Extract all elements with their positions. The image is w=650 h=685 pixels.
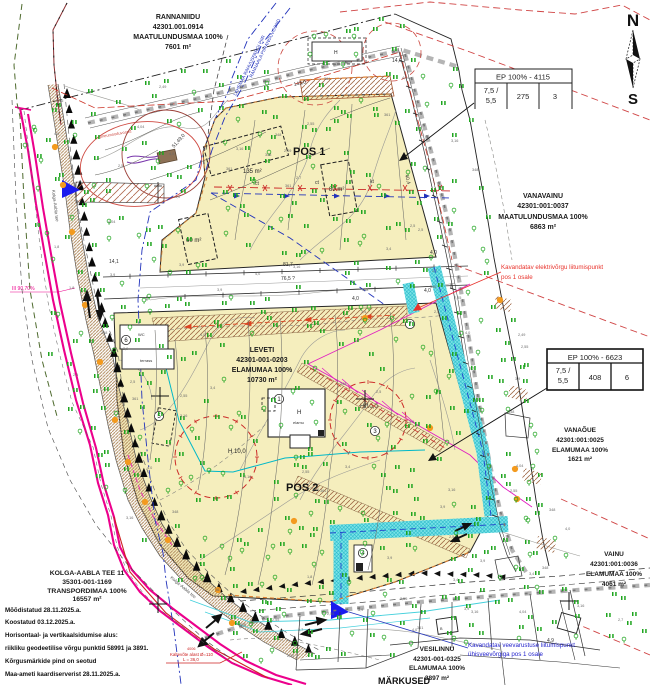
svg-text:4,04: 4,04 xyxy=(137,125,144,129)
svg-text:361: 361 xyxy=(215,588,221,592)
svg-text:3,16: 3,16 xyxy=(471,610,478,614)
svg-text:3,16: 3,16 xyxy=(577,604,584,608)
svg-text:3,9: 3,9 xyxy=(515,377,520,381)
svg-text:348: 348 xyxy=(101,331,107,335)
svg-text:3,9: 3,9 xyxy=(358,608,363,612)
svg-text:WC: WC xyxy=(138,332,145,337)
svg-text:Maa-ameti kaardiserverist 28.1: Maa-ameti kaardiserverist 28.11.2025.a. xyxy=(5,671,121,678)
svg-text:2,5: 2,5 xyxy=(130,380,135,384)
svg-text:135 m²: 135 m² xyxy=(243,169,262,175)
svg-text:3,9: 3,9 xyxy=(440,505,445,509)
svg-text:3,16: 3,16 xyxy=(244,475,251,479)
svg-text:4,0: 4,0 xyxy=(175,195,180,199)
svg-text:VANAÕUE: VANAÕUE xyxy=(564,425,597,434)
svg-text:Kavandatav veevarustuse liitum: Kavandatav veevarustuse liitumispunkt xyxy=(468,642,575,649)
svg-text:4,9: 4,9 xyxy=(547,638,554,644)
svg-text:S: S xyxy=(628,91,638,108)
svg-text:3,9: 3,9 xyxy=(179,263,184,267)
svg-text:2,55: 2,55 xyxy=(454,296,461,300)
svg-text:4,0: 4,0 xyxy=(412,628,417,632)
svg-text:6863 m²: 6863 m² xyxy=(530,224,557,231)
svg-text:361: 361 xyxy=(417,626,423,630)
svg-text:VANAVAINU: VANAVAINU xyxy=(523,193,563,200)
svg-text:4,0: 4,0 xyxy=(169,152,174,156)
svg-text:1,8: 1,8 xyxy=(307,575,312,579)
svg-text:348: 348 xyxy=(508,410,514,414)
svg-text:361: 361 xyxy=(384,113,390,117)
svg-text:ühisveevõrgiga pos 1 osale: ühisveevõrgiga pos 1 osale xyxy=(468,651,544,658)
svg-text:4,04: 4,04 xyxy=(108,220,115,224)
svg-text:3,4: 3,4 xyxy=(529,572,534,576)
svg-text:4,0: 4,0 xyxy=(465,331,470,335)
svg-text:3,9: 3,9 xyxy=(110,273,115,277)
svg-text:35301-001-1169: 35301-001-1169 xyxy=(62,579,112,586)
svg-text:7,5 /: 7,5 / xyxy=(484,86,500,95)
svg-text:4,0: 4,0 xyxy=(565,527,570,531)
svg-text:H: H xyxy=(334,50,338,56)
svg-text:Horisontaal- ja vertikaalsidum: Horisontaal- ja vertikaalsidumise alus: xyxy=(5,632,118,639)
svg-text:361: 361 xyxy=(320,489,326,493)
svg-text:348: 348 xyxy=(275,133,281,137)
svg-text:2,7: 2,7 xyxy=(296,176,301,180)
svg-text:Kavandatav elektrivõrgu liitum: Kavandatav elektrivõrgu liitumispunkt xyxy=(501,264,603,271)
svg-text:3,16: 3,16 xyxy=(56,99,63,103)
svg-text:EP 100% - 4115: EP 100% - 4115 xyxy=(496,73,550,82)
svg-text:VESILINNU: VESILINNU xyxy=(420,646,455,653)
svg-text:4061 m²: 4061 m² xyxy=(602,581,627,588)
svg-text:elamu: elamu xyxy=(293,420,304,425)
svg-text:1621 m²: 1621 m² xyxy=(568,456,593,463)
svg-text:pos 1 osale: pos 1 osale xyxy=(501,274,533,281)
svg-text:361: 361 xyxy=(324,77,330,81)
svg-text:ELAMUMAA 100%: ELAMUMAA 100% xyxy=(552,447,608,454)
svg-text:42301:001:0036: 42301:001:0036 xyxy=(590,561,638,568)
svg-text:2,55: 2,55 xyxy=(510,489,517,493)
svg-text:42301.001.0914: 42301.001.0914 xyxy=(153,24,204,31)
svg-text:ELAMUMAA 100%: ELAMUMAA 100% xyxy=(232,367,293,374)
svg-text:348: 348 xyxy=(430,285,436,289)
svg-text:3,16: 3,16 xyxy=(293,265,300,269)
svg-text:42301-001-0325: 42301-001-0325 xyxy=(413,656,461,663)
svg-text:2,55: 2,55 xyxy=(521,345,528,349)
svg-text:H 10,0: H 10,0 xyxy=(228,449,246,455)
svg-text:348: 348 xyxy=(172,510,178,514)
svg-text:riikliku geodeetilise võrgu pu: riikliku geodeetilise võrgu punktid 5899… xyxy=(5,645,149,652)
svg-text:3,4: 3,4 xyxy=(453,578,458,582)
svg-text:3,16: 3,16 xyxy=(448,488,455,492)
svg-text:3,4: 3,4 xyxy=(210,386,215,390)
svg-text:3,9: 3,9 xyxy=(480,559,485,563)
svg-text:2,5: 2,5 xyxy=(73,373,78,377)
svg-text:4,04: 4,04 xyxy=(519,610,526,614)
svg-text:16557 m²: 16557 m² xyxy=(72,596,102,603)
svg-text:76,5 ?: 76,5 ? xyxy=(281,276,295,282)
svg-text:2,5: 2,5 xyxy=(410,224,415,228)
svg-text:2,55: 2,55 xyxy=(327,612,334,616)
svg-text:3,9: 3,9 xyxy=(409,420,414,424)
svg-text:42301:001:0025: 42301:001:0025 xyxy=(556,437,604,444)
svg-text:2,7: 2,7 xyxy=(432,269,437,273)
svg-text:2,5: 2,5 xyxy=(434,310,439,314)
svg-text:3,9: 3,9 xyxy=(387,556,392,560)
svg-text:5,5: 5,5 xyxy=(486,96,496,105)
svg-text:2,7: 2,7 xyxy=(298,628,303,632)
svg-text:42301:001:0037: 42301:001:0037 xyxy=(517,203,568,210)
svg-text:3,9: 3,9 xyxy=(464,607,469,611)
svg-text:3,16: 3,16 xyxy=(451,139,458,143)
svg-text:2,55: 2,55 xyxy=(180,394,187,398)
svg-text:14,1: 14,1 xyxy=(109,259,119,265)
svg-text:Kõrgusmärkide pind on seotud: Kõrgusmärkide pind on seotud xyxy=(5,658,97,665)
svg-text:361: 361 xyxy=(226,167,232,171)
svg-text:1,8: 1,8 xyxy=(69,286,74,290)
svg-text:4,0: 4,0 xyxy=(147,466,152,470)
svg-text:2,55: 2,55 xyxy=(302,470,309,474)
svg-text:Koostatud 03.12.2025.a.: Koostatud 03.12.2025.a. xyxy=(5,619,75,626)
svg-text:275: 275 xyxy=(517,92,530,101)
svg-text:42301-001-0203: 42301-001-0203 xyxy=(236,357,287,364)
svg-text:2,7: 2,7 xyxy=(469,367,474,371)
svg-text:10730 m²: 10730 m² xyxy=(247,377,278,384)
svg-text:2,49: 2,49 xyxy=(284,149,291,153)
svg-text:361: 361 xyxy=(132,397,138,401)
svg-text:6: 6 xyxy=(625,373,629,382)
svg-text:4,0: 4,0 xyxy=(255,272,260,276)
svg-text:3,16: 3,16 xyxy=(126,516,133,520)
svg-text:4,0: 4,0 xyxy=(54,132,59,136)
svg-text:2,49: 2,49 xyxy=(159,85,166,89)
svg-text:5,5: 5,5 xyxy=(558,376,568,385)
svg-text:MAATULUNDUSMAA 100%: MAATULUNDUSMAA 100% xyxy=(133,34,223,41)
svg-text:terrass: terrass xyxy=(140,358,152,363)
svg-text:1,8: 1,8 xyxy=(54,245,59,249)
svg-text:N: N xyxy=(627,11,639,30)
svg-text:81,7: 81,7 xyxy=(283,262,293,268)
svg-text:EP 100% - 6623: EP 100% - 6623 xyxy=(568,353,623,362)
svg-text:3: 3 xyxy=(553,92,557,101)
svg-text:RANNANIIDU: RANNANIIDU xyxy=(156,14,200,21)
svg-text:361: 361 xyxy=(285,184,291,188)
svg-text:2,5: 2,5 xyxy=(449,535,454,539)
svg-text:4,04: 4,04 xyxy=(402,76,409,80)
svg-text:2,49: 2,49 xyxy=(518,333,525,337)
svg-text:kt: kt xyxy=(370,179,375,185)
svg-text:2,55: 2,55 xyxy=(287,654,294,658)
svg-text:ct: ct xyxy=(315,180,320,186)
svg-text:3,16: 3,16 xyxy=(180,414,187,418)
svg-text:348: 348 xyxy=(542,566,548,570)
svg-text:MAATULUNDUSMAA 100%: MAATULUNDUSMAA 100% xyxy=(498,214,588,221)
svg-text:2,5: 2,5 xyxy=(418,228,423,232)
svg-text:2,7: 2,7 xyxy=(618,618,623,622)
svg-text:408: 408 xyxy=(589,373,602,382)
svg-text:348: 348 xyxy=(472,168,478,172)
svg-text:3,4: 3,4 xyxy=(361,310,366,314)
svg-text:4006: 4006 xyxy=(187,647,195,651)
svg-text:4,0: 4,0 xyxy=(352,296,359,302)
svg-text:4,04: 4,04 xyxy=(516,464,523,468)
svg-text:348: 348 xyxy=(265,153,271,157)
svg-text:7,5 /: 7,5 / xyxy=(556,366,572,375)
svg-text:348: 348 xyxy=(549,508,555,512)
svg-text:3,4: 3,4 xyxy=(386,247,391,251)
svg-text:TRANSPORDIMAA 100%: TRANSPORDIMAA 100% xyxy=(47,588,126,595)
svg-text:2,55: 2,55 xyxy=(272,618,279,622)
svg-text:2,5: 2,5 xyxy=(376,390,381,394)
svg-text:L = 36,0: L = 36,0 xyxy=(183,657,199,662)
svg-text:LEVETI: LEVETI xyxy=(250,347,275,354)
svg-text:Mõõdistatud 28.11.2025.a.: Mõõdistatud 28.11.2025.a. xyxy=(5,607,81,614)
svg-text:2,5: 2,5 xyxy=(118,164,123,168)
svg-text:ELAMUMAA 100%: ELAMUMAA 100% xyxy=(586,571,642,578)
svg-text:H: H xyxy=(297,410,301,416)
svg-text:VAINU: VAINU xyxy=(604,551,624,558)
svg-text:3,16: 3,16 xyxy=(312,488,319,492)
svg-text:2,55: 2,55 xyxy=(307,122,314,126)
svg-text:III 90,70%: III 90,70% xyxy=(12,286,35,292)
svg-text:3,9: 3,9 xyxy=(217,288,222,292)
svg-text:KOLGA-AABLA TEE 11: KOLGA-AABLA TEE 11 xyxy=(50,570,125,577)
svg-text:7601 m²: 7601 m² xyxy=(165,44,192,51)
svg-text:14,0: 14,0 xyxy=(392,58,402,64)
svg-text:ELAMUMAA 100%: ELAMUMAA 100% xyxy=(409,665,465,672)
svg-text:3,4: 3,4 xyxy=(345,465,350,469)
svg-text:2,55: 2,55 xyxy=(400,597,407,601)
svg-text:4,0: 4,0 xyxy=(200,333,205,337)
svg-text:3,16: 3,16 xyxy=(236,147,243,151)
svg-text:348: 348 xyxy=(362,288,368,292)
svg-text:348: 348 xyxy=(340,382,346,386)
svg-text:MÄRKUSED: MÄRKUSED xyxy=(378,676,431,685)
svg-text:3,9: 3,9 xyxy=(123,347,128,351)
